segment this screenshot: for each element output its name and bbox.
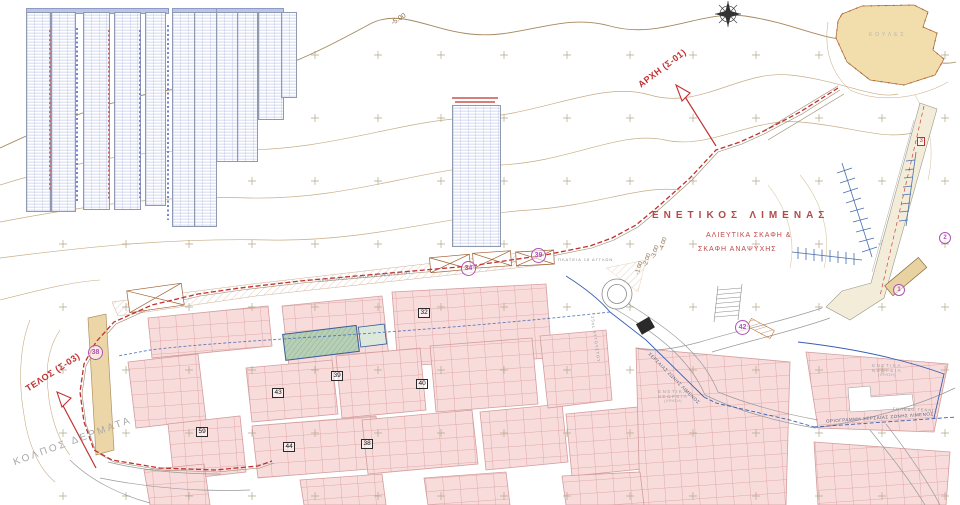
coordinate-table	[172, 12, 195, 227]
area-marker-34: 34	[461, 261, 476, 276]
harbor-subtitle-1: ΑΛΙΕΥΤΙΚΑ ΣΚΑΦΗ &	[706, 232, 791, 240]
block-number-43: 43	[272, 388, 284, 398]
square-label: ΠΛΑΤΕΙΑ 18 ΑΓΓΛΩΝ	[558, 258, 613, 262]
area-marker-2: 2	[939, 232, 951, 244]
table-caption-strip	[49, 30, 51, 190]
coordinate-table	[237, 12, 258, 162]
start-leader-arrow	[682, 92, 716, 146]
area-marker-1: 1	[893, 284, 905, 296]
table-caption-strip	[76, 28, 78, 203]
block-number-39: 39	[331, 371, 343, 381]
coordinate-table	[26, 12, 51, 212]
slipway	[747, 318, 774, 338]
table-caption-strip	[167, 25, 169, 220]
neoria-label-right: ΕΝΕΤΙΚΑ ΝΕΩΡΕΙΑ (ΧΡΗΣΗ)	[852, 364, 922, 378]
coordinate-table	[114, 12, 141, 210]
block-number-40: 40	[416, 379, 428, 389]
coordinate-table	[452, 105, 501, 247]
harbor-title: ΕΝΕΤΙΚΟΣ ΛΙΜΕΝΑΣ	[652, 210, 829, 221]
coordinate-table	[216, 12, 238, 162]
koules-fortress-outline	[836, 5, 944, 85]
area-marker-38: 38	[88, 345, 103, 360]
block-number-44: 44	[283, 442, 295, 452]
city-blocks	[128, 284, 950, 505]
fortress-label: ΚΟΥΛΕΣ	[869, 33, 907, 39]
north-compass-icon	[715, 1, 741, 27]
area-marker-3: 3	[917, 137, 925, 146]
block-number-38: 38	[361, 439, 373, 449]
block-number-59: 59	[196, 427, 208, 437]
coordinate-table	[83, 12, 110, 210]
block-number-32: 32	[418, 308, 430, 318]
coordinate-table	[145, 12, 166, 206]
east-quay	[826, 103, 937, 320]
map-drawing-canvas	[0, 0, 960, 505]
area-marker-39: 39	[531, 248, 546, 263]
coordinate-table	[51, 12, 76, 212]
coordinate-table	[194, 12, 217, 227]
area-marker-42: 42	[735, 320, 750, 335]
table-caption-strip	[139, 30, 141, 198]
small-table-title	[455, 101, 495, 103]
coordinate-table	[281, 12, 297, 98]
stairs	[714, 284, 742, 322]
table-caption-strip	[108, 30, 110, 200]
small-table-title	[452, 97, 498, 99]
harbor-site-plan: -5.00 ΑΡΧΗ (Σ-01) ΤΕΛΟΣ (Σ-03) ΕΝΕΤΙΚΟΣ …	[0, 0, 960, 505]
harbor-subtitle-2: ΣΚΑΦΗ ΑΝΑΨΥΧΗΣ	[698, 246, 777, 254]
